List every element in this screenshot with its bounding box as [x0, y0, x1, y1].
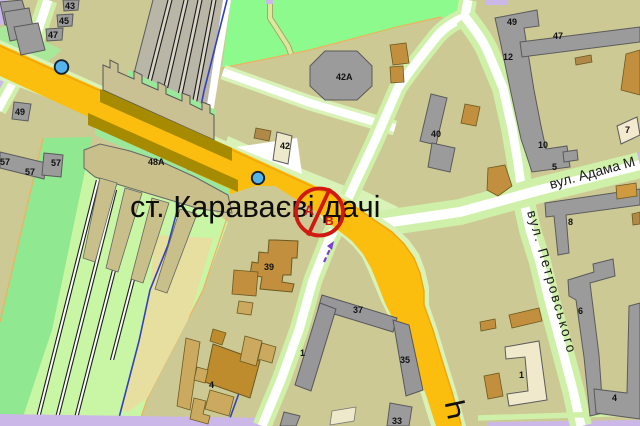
svg-text:4: 4	[612, 393, 617, 403]
svg-text:А: А	[304, 202, 314, 218]
svg-text:47: 47	[48, 30, 58, 40]
svg-text:49: 49	[15, 107, 25, 117]
svg-text:6: 6	[578, 306, 583, 316]
svg-text:47: 47	[553, 31, 563, 41]
svg-text:57: 57	[25, 167, 35, 177]
svg-text:12: 12	[503, 52, 513, 62]
svg-text:4: 4	[209, 380, 214, 390]
svg-text:1: 1	[519, 370, 524, 380]
svg-text:8: 8	[568, 217, 573, 227]
svg-text:1: 1	[300, 348, 305, 358]
svg-text:7: 7	[625, 125, 630, 135]
svg-text:5: 5	[552, 162, 557, 172]
svg-text:48A: 48A	[148, 157, 165, 167]
svg-text:10: 10	[538, 140, 548, 150]
svg-text:49: 49	[507, 17, 517, 27]
svg-text:35: 35	[400, 355, 410, 365]
svg-text:40: 40	[431, 129, 441, 139]
svg-text:57: 57	[51, 158, 61, 168]
svg-text:39: 39	[264, 262, 274, 272]
svg-text:42: 42	[280, 141, 290, 151]
svg-text:43: 43	[65, 1, 75, 11]
svg-text:45: 45	[59, 16, 69, 26]
svg-text:42A: 42A	[336, 72, 353, 82]
svg-text:57: 57	[0, 157, 10, 167]
svg-text:33: 33	[392, 416, 402, 426]
svg-text:37: 37	[353, 305, 363, 315]
svg-text:В: В	[325, 214, 334, 228]
